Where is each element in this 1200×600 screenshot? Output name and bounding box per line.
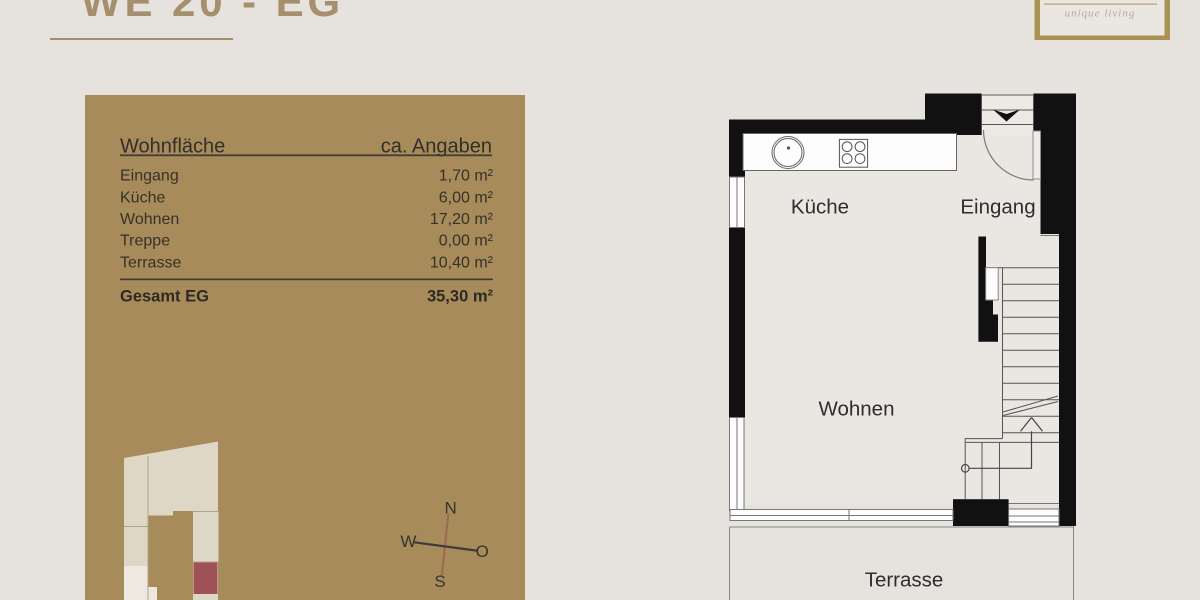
svg-text:S: S — [434, 572, 445, 591]
svg-text:Terrasse: Terrasse — [120, 254, 181, 271]
svg-text:1,70 m²: 1,70 m² — [439, 168, 494, 185]
svg-text:6,00 m²: 6,00 m² — [439, 189, 494, 206]
svg-text:N: N — [444, 499, 456, 518]
svg-text:Küche: Küche — [120, 189, 165, 206]
svg-text:17,20 m²: 17,20 m² — [430, 211, 494, 228]
svg-text:Eingang: Eingang — [960, 196, 1035, 219]
svg-text:Gesamt EG: Gesamt EG — [120, 288, 209, 306]
svg-text:Eingang: Eingang — [120, 168, 179, 185]
svg-text:Terrasse: Terrasse — [865, 569, 944, 592]
svg-text:O: O — [476, 542, 489, 561]
svg-text:Wohnen: Wohnen — [120, 211, 179, 228]
svg-text:10,40 m²: 10,40 m² — [430, 254, 494, 271]
svg-text:Küche: Küche — [791, 196, 849, 219]
svg-text:35,30 m²: 35,30 m² — [427, 288, 494, 306]
svg-text:Wohnen: Wohnen — [819, 398, 895, 421]
svg-text:0,00 m²: 0,00 m² — [439, 233, 494, 250]
svg-text:W: W — [400, 532, 416, 551]
svg-text:unique living: unique living — [1065, 8, 1136, 20]
svg-text:Treppe: Treppe — [120, 233, 170, 250]
svg-text:WE 20 - EG: WE 20 - EG — [81, 0, 344, 25]
